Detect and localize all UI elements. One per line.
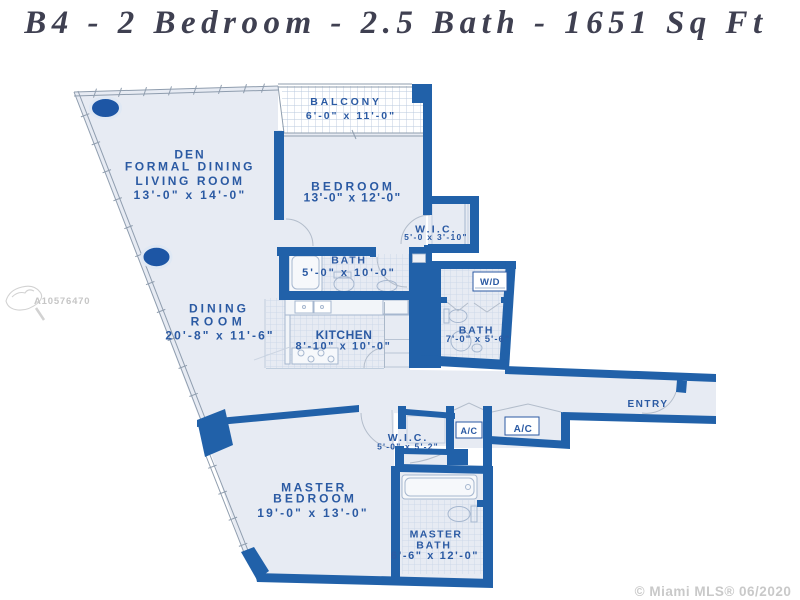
svg-text:5'-0" x 5'-2": 5'-0" x 5'-2" bbox=[377, 442, 439, 452]
svg-text:LIVING ROOM: LIVING ROOM bbox=[135, 174, 244, 188]
svg-text:5'-0" x 10'-0": 5'-0" x 10'-0" bbox=[302, 267, 396, 279]
svg-text:ROOM: ROOM bbox=[191, 315, 247, 329]
svg-text:A10576470: A10576470 bbox=[34, 296, 90, 307]
svg-text:BATH: BATH bbox=[331, 255, 367, 267]
svg-text:13'-0" x 14'-0": 13'-0" x 14'-0" bbox=[134, 188, 247, 202]
svg-text:6'-0" x 11'-0": 6'-0" x 11'-0" bbox=[306, 110, 396, 122]
svg-text:20'-8" x 11'-6": 20'-8" x 11'-6" bbox=[165, 329, 274, 343]
svg-text:8'-10" x 10'-0": 8'-10" x 10'-0" bbox=[296, 341, 392, 353]
svg-text:BALCONY: BALCONY bbox=[310, 96, 382, 108]
svg-text:7'-0" x 5'-6": 7'-0" x 5'-6" bbox=[446, 334, 511, 345]
svg-text:A/C: A/C bbox=[514, 424, 533, 435]
svg-text:13'-0" x 12'-0": 13'-0" x 12'-0" bbox=[304, 191, 402, 205]
svg-text:19'-0" x 13'-0": 19'-0" x 13'-0" bbox=[257, 506, 368, 520]
svg-text:BEDROOM: BEDROOM bbox=[273, 492, 357, 506]
svg-text:DINING: DINING bbox=[189, 302, 249, 316]
svg-text:© Miami MLS® 06/2020: © Miami MLS® 06/2020 bbox=[635, 584, 792, 599]
svg-text:A/C: A/C bbox=[461, 426, 478, 436]
svg-text:5'-0 x 3'-10": 5'-0 x 3'-10" bbox=[404, 232, 468, 242]
svg-text:ENTRY: ENTRY bbox=[627, 399, 668, 410]
svg-text:6'-6" x 12'-0": 6'-6" x 12'-0" bbox=[391, 550, 479, 562]
svg-text:B4 - 2 Bedroom - 2.5 Bath - 16: B4 - 2 Bedroom - 2.5 Bath - 1651 Sq Ft bbox=[23, 5, 767, 41]
svg-text:FORMAL DINING: FORMAL DINING bbox=[125, 160, 255, 174]
svg-text:W/D: W/D bbox=[480, 277, 500, 288]
